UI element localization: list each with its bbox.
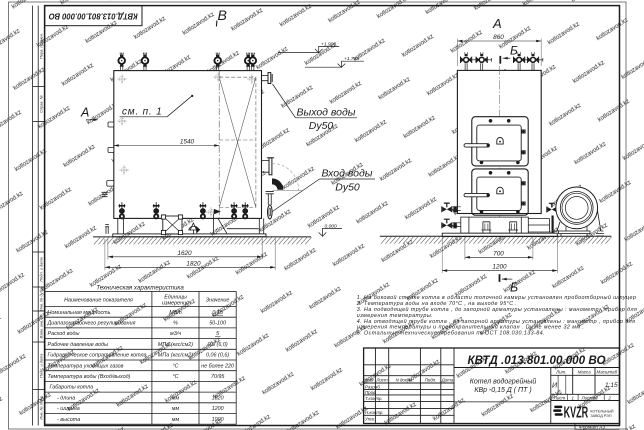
- svg-text:Температура уходящих газов: Температура уходящих газов: [48, 363, 124, 369]
- svg-text:50-100: 50-100: [209, 321, 226, 327]
- svg-text:Подп. и дата: Подп. и дата: [39, 256, 44, 281]
- svg-text:не более 220: не более 220: [201, 363, 234, 369]
- svg-text:1620: 1620: [177, 250, 192, 257]
- svg-text:Вход воды: Вход воды: [322, 168, 373, 180]
- svg-text:%: %: [173, 321, 178, 327]
- svg-text:Разраб.: Разраб.: [365, 384, 381, 389]
- svg-text:А: А: [492, 16, 502, 31]
- svg-text:Котел водогрейный: Котел водогрейный: [470, 377, 537, 385]
- svg-text:- высота: - высота: [57, 417, 80, 423]
- svg-text:+1.900: +1.900: [321, 41, 336, 47]
- svg-text:Справ. №: Справ. №: [39, 94, 44, 112]
- svg-text:Масштаб: Масштаб: [597, 370, 618, 375]
- svg-text:Значение: Значение: [206, 297, 230, 303]
- svg-text:мм: мм: [172, 406, 180, 412]
- svg-text:МПа (кгс/см2): МПа (кгс/см2): [158, 353, 193, 359]
- svg-text:МПа (кгс/см2): МПа (кгс/см2): [158, 342, 193, 348]
- svg-text:KVZR: KVZR: [564, 404, 589, 421]
- svg-text:Подп.: Подп.: [425, 378, 437, 383]
- svg-text:Б: Б: [510, 44, 518, 58]
- svg-text:Листов: Листов: [581, 395, 599, 400]
- svg-text:1820: 1820: [186, 261, 201, 268]
- svg-text:- длина: - длина: [57, 395, 75, 401]
- svg-text:Перв. примен.: Перв. примен.: [39, 33, 44, 59]
- svg-text:КОТЕЛЬНЫЙ: КОТЕЛЬНЫЙ: [590, 409, 613, 413]
- svg-text:Лит.: Лит.: [555, 370, 566, 375]
- svg-text:Габариты котла: Габариты котла: [50, 385, 94, 391]
- svg-text:Утв.: Утв.: [365, 417, 375, 422]
- svg-text:Б: Б: [510, 280, 518, 294]
- svg-text:Т.контр.: Т.контр.: [365, 396, 383, 401]
- svg-text:860: 860: [493, 34, 504, 41]
- svg-text:0,06 (0,6): 0,06 (0,6): [206, 353, 229, 359]
- svg-text:см. п. 1: см. п. 1: [122, 107, 162, 118]
- svg-text:Гидравлическое сопративление к: Гидравлическое сопративление котла: [48, 353, 147, 359]
- svg-text:5. Остальные технические треб: 5. Остальные технические требования по О…: [357, 331, 545, 337]
- svg-text:1:15: 1:15: [605, 382, 618, 389]
- svg-text:МВт: МВт: [169, 310, 182, 316]
- svg-text:Масса: Масса: [578, 370, 592, 375]
- svg-text:мм: мм: [172, 417, 180, 423]
- svg-text:Диапазон рабочего регулировани: Диапазон рабочего регулирования: [47, 321, 136, 327]
- svg-text:N докум.: N докум.: [396, 378, 414, 383]
- svg-text:Н.контр.: Н.контр.: [365, 410, 384, 415]
- svg-text:+1.735: +1.735: [344, 56, 359, 62]
- svg-text:70/95: 70/95: [211, 374, 225, 380]
- svg-text:ЗАВОД РЭП: ЗАВОД РЭП: [590, 414, 611, 418]
- svg-text:Номинальная мощность: Номинальная мощность: [48, 310, 111, 316]
- svg-text:Дата: Дата: [441, 378, 454, 383]
- svg-text:Изм: Изм: [365, 378, 373, 383]
- svg-text:Единицы: Единицы: [164, 294, 187, 300]
- svg-text:°С: °С: [172, 374, 178, 380]
- svg-text:Наименование показателя: Наименование показателя: [64, 297, 133, 303]
- svg-text:Расход воды: Расход воды: [48, 331, 80, 337]
- svg-text:Подп. и дата: Подп. и дата: [39, 353, 44, 378]
- svg-text:0,15: 0,15: [212, 310, 223, 316]
- svg-text:КВТД.013.801.00.000 ВО: КВТД.013.801.00.000 ВО: [48, 12, 137, 22]
- svg-text:В: В: [218, 7, 227, 23]
- svg-text:Техническая характеристика: Техническая характеристика: [96, 284, 184, 291]
- svg-text:0.000: 0.000: [325, 223, 338, 229]
- svg-text:Лист: Лист: [375, 378, 388, 383]
- svg-text:Инв. № дубл.: Инв. № дубл.: [39, 287, 44, 311]
- svg-text:Dy50: Dy50: [309, 120, 334, 132]
- svg-text:1200: 1200: [492, 264, 507, 271]
- svg-text:1900: 1900: [212, 417, 224, 423]
- svg-text:700: 700: [493, 250, 504, 257]
- svg-text:Пров.: Пров.: [365, 390, 377, 395]
- svg-text:0,6 (6,0): 0,6 (6,0): [208, 342, 228, 348]
- svg-text:КВр -0,15 Д ( ПТ ): КВр -0,15 Д ( ПТ ): [474, 387, 531, 394]
- svg-text:1820: 1820: [212, 395, 224, 401]
- svg-text:м3/ч: м3/ч: [170, 331, 181, 337]
- svg-text:Температура воды (Вход/выход): Температура воды (Вход/выход): [48, 374, 131, 380]
- svg-text:2: 2: [607, 395, 611, 400]
- svg-text:Формат А3: Формат А3: [579, 425, 606, 430]
- svg-text:- ширина: - ширина: [57, 406, 80, 412]
- svg-text:Лист: Лист: [553, 395, 566, 400]
- svg-text:°С: °С: [172, 363, 178, 369]
- svg-text:КВТД .013.801.00.000 ВО: КВТД .013.801.00.000 ВО: [468, 353, 606, 367]
- svg-text:А: А: [80, 106, 89, 120]
- svg-text:мм: мм: [172, 395, 180, 401]
- svg-text:Dy50: Dy50: [335, 182, 360, 194]
- svg-text:И: И: [552, 380, 558, 389]
- svg-text:Взам. инв. №: Взам. инв. №: [39, 314, 44, 339]
- svg-text:измерения: измерения: [162, 301, 189, 307]
- svg-text:Выход воды: Выход воды: [296, 107, 355, 119]
- svg-text:Рабочее давление воды: Рабочее давление воды: [48, 342, 108, 348]
- svg-text:1540: 1540: [180, 139, 195, 146]
- svg-text:Инв. № подл.: Инв. № подл.: [39, 395, 44, 419]
- svg-text:1200: 1200: [212, 406, 224, 412]
